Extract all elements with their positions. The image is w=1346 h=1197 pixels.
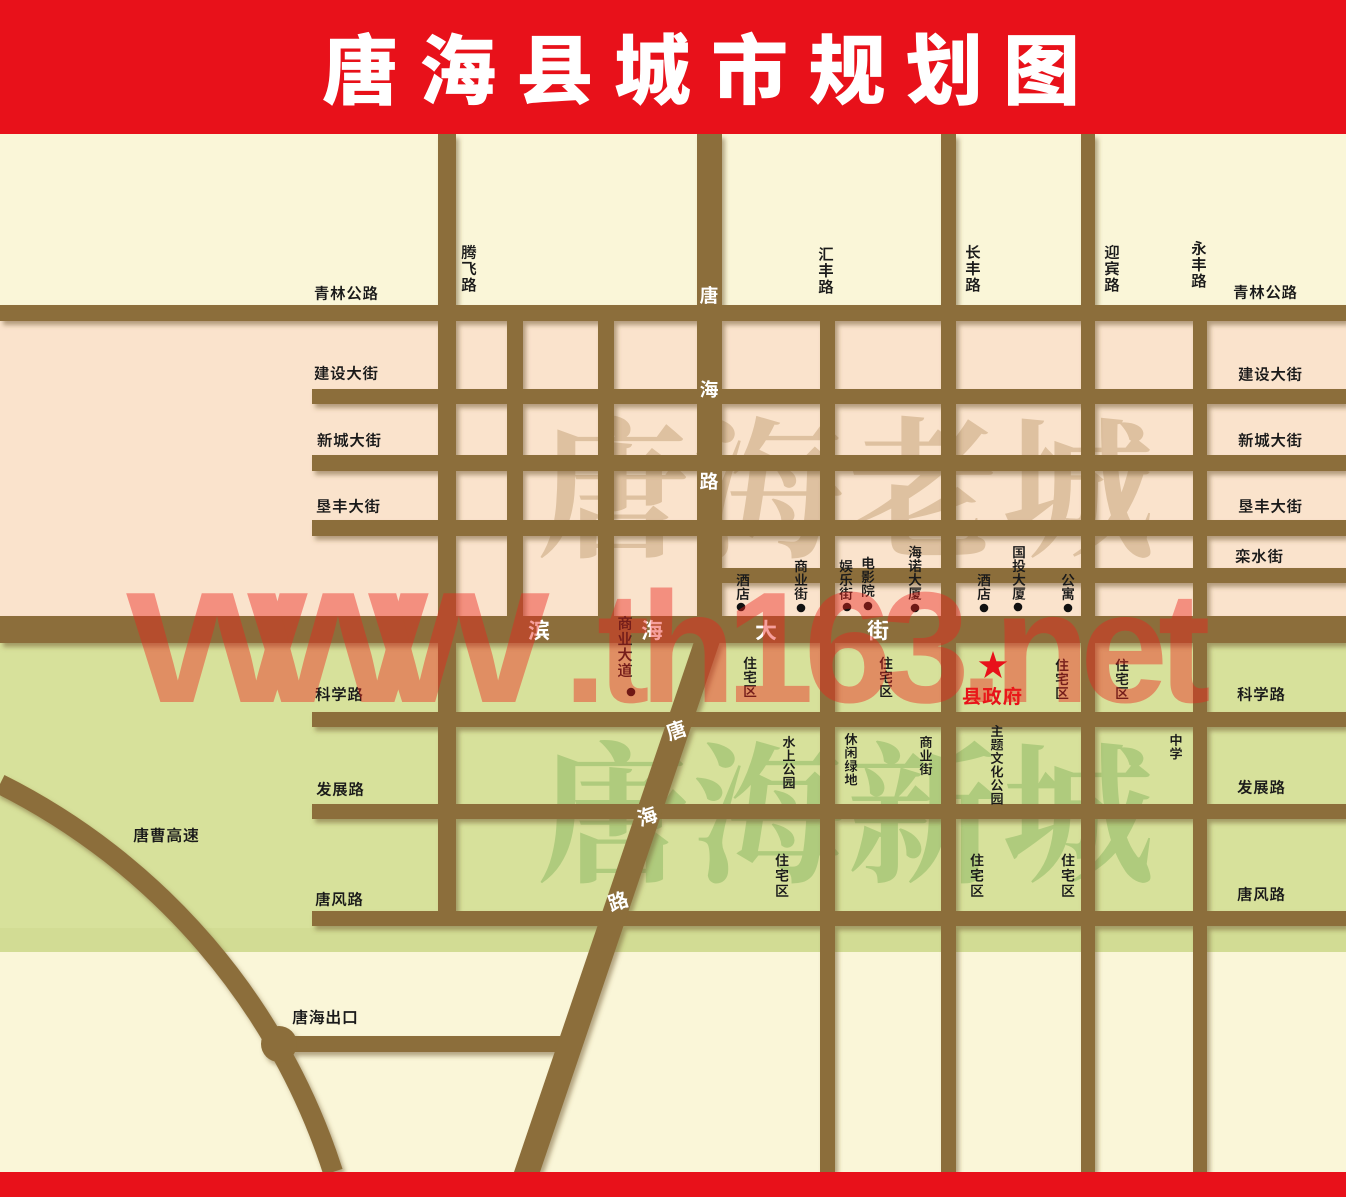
svg-text:.th163.net: .th163.net	[563, 560, 1209, 736]
svg-text:WWW: WWW	[126, 559, 550, 736]
